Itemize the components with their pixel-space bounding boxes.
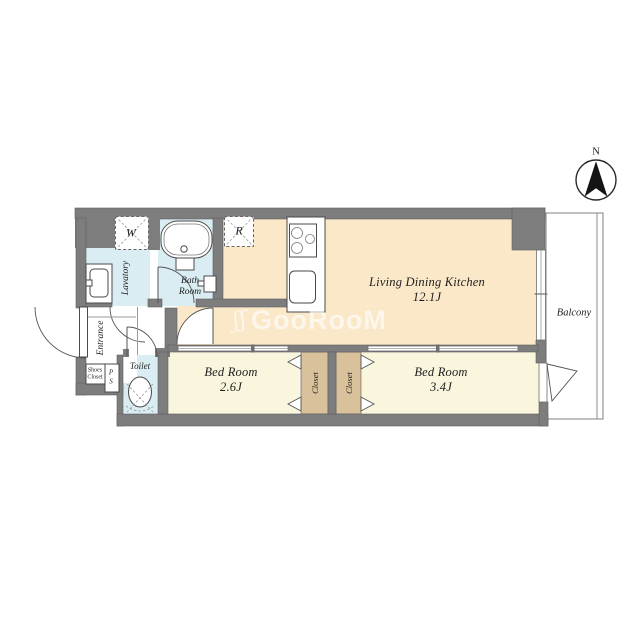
- wall-bath-right: [213, 218, 223, 306]
- wall-between-closets: [328, 352, 336, 414]
- wall-bedroom1-left: [158, 352, 168, 414]
- toilet-bowl: [129, 377, 152, 407]
- wall-lav-bottom-r: [148, 299, 162, 307]
- bedroom1-floor: [168, 352, 300, 414]
- pipe-space-box: [105, 364, 119, 392]
- wall-w-bath: [148, 218, 160, 250]
- wall-right-bottom: [539, 402, 548, 426]
- washbasin-tap: [86, 280, 92, 286]
- kitchen-sink: [290, 271, 316, 303]
- bath-counter: [176, 258, 194, 270]
- wall-bottom: [117, 414, 548, 426]
- bathtub-drain: [181, 246, 187, 252]
- wall-hall-ldk: [165, 308, 177, 348]
- compass: [576, 160, 616, 200]
- ldk-floor-main: [223, 250, 536, 345]
- bedroom2-balcony-window: [539, 363, 547, 402]
- shoes-closet-box: [86, 364, 105, 384]
- wall-toilet-top-l: [123, 349, 129, 357]
- wall-left-upper: [76, 218, 86, 308]
- closet2-floor: [336, 352, 361, 414]
- floor-plan-drawing: [0, 0, 640, 640]
- wall-kitchen-bottom: [196, 299, 287, 307]
- washbasin-bowl: [90, 269, 108, 297]
- bedroom2-floor: [362, 352, 539, 414]
- bath-shower-stand: [204, 276, 216, 292]
- closet1-floor: [301, 352, 328, 414]
- bath-shower-knob: [198, 281, 204, 286]
- bathtub: [161, 221, 212, 258]
- wall-topright-chunk: [512, 208, 545, 250]
- entrance-door-arc: [35, 307, 86, 358]
- ldk-floor-top: [223, 217, 512, 252]
- floor-plan: Living Dining Kitchen 12.1J Bed Room 2.6…: [0, 0, 640, 640]
- entrance-door-leaf: [80, 307, 88, 357]
